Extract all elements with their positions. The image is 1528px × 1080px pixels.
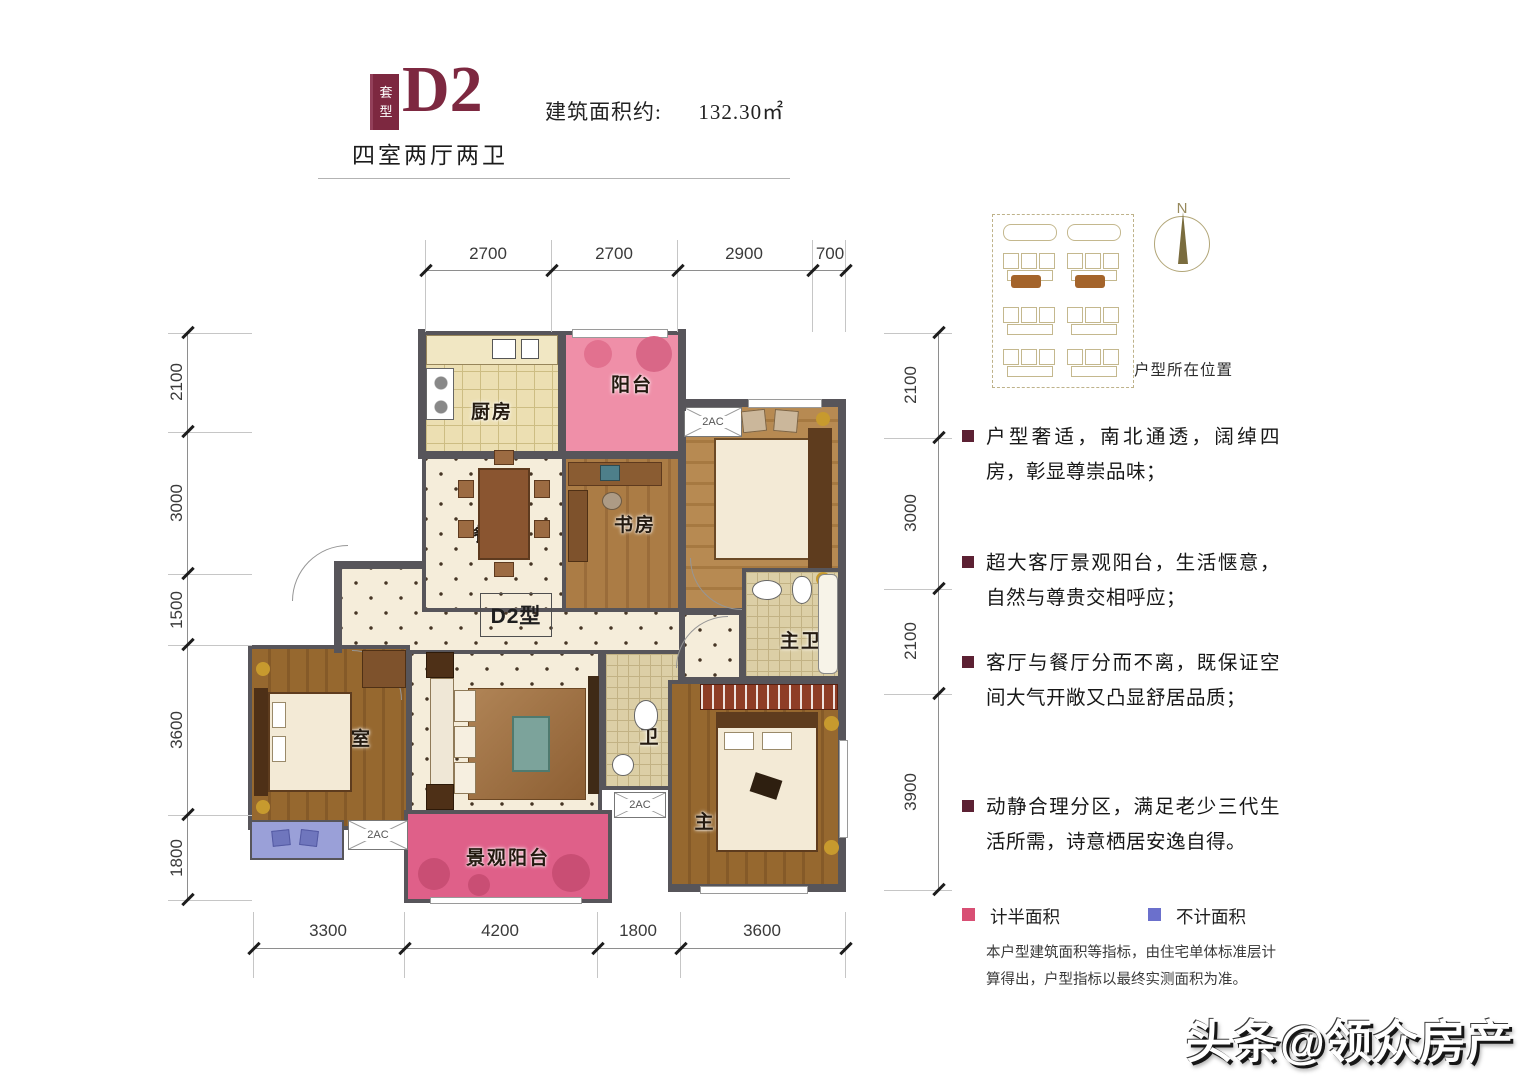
bullet-marker [962, 430, 974, 442]
bullet-text-4: 动静合理分区，满足老少三代生活所需，诗意栖居安逸自得。 [986, 790, 1280, 860]
master-bed-pillow [762, 732, 792, 750]
plan-unit-label-box: D2型 [480, 593, 552, 637]
bedroom-left-lamp [256, 662, 270, 676]
badge-char-bottom: 型 [379, 102, 392, 122]
window [430, 897, 582, 904]
bullet-text-1: 户型奢适，南北通透，阔绰四房，彰显尊崇品味； [986, 420, 1280, 490]
bedroom-left-dresser [362, 650, 406, 688]
bullet-marker [962, 800, 974, 812]
dim-extension [168, 645, 252, 646]
compass-needle [1178, 212, 1188, 264]
ac-unit-box-3: 2AC [614, 792, 666, 818]
view-balcony-flower [552, 854, 590, 892]
master-lamp [824, 840, 839, 855]
area-value: 132.30㎡ [698, 100, 784, 124]
no-area-cushion [299, 829, 319, 847]
site-map [992, 214, 1134, 388]
dim-left-2: 3000 [167, 468, 187, 538]
dim-left-1: 2100 [167, 347, 187, 417]
living-sofa-seat [454, 762, 476, 794]
unit-type-badge: 套 型 [370, 74, 399, 130]
site-highlight-unit [1011, 275, 1041, 288]
dim-line-top [425, 270, 845, 271]
view-balcony-flower [468, 874, 490, 896]
master-wardrobe [700, 684, 838, 710]
master-bath-toilet [792, 576, 812, 604]
study-computer [600, 465, 620, 481]
balcony-flower [584, 340, 612, 368]
site-location-label: 户型所在位置 [1134, 358, 1233, 380]
dining-table [478, 468, 530, 560]
dim-left-5: 1800 [167, 823, 187, 893]
site-building [1007, 324, 1053, 335]
living-end-table [426, 652, 454, 678]
bedroom-top-lamp [816, 412, 830, 426]
master-bath-shower [818, 574, 838, 674]
no-area-cushion [271, 829, 291, 847]
site-building [1003, 307, 1055, 323]
bedroom-left-lamp [256, 800, 270, 814]
dim-left-4: 3600 [167, 695, 187, 765]
wall-segment [418, 329, 426, 459]
dim-extension [884, 589, 952, 590]
legend-swatch-half-area [962, 908, 975, 921]
ac-unit-label-1: 2AC [699, 416, 726, 428]
dim-extension [168, 815, 252, 816]
site-building [1003, 224, 1057, 241]
unit-code: D2 [402, 52, 483, 128]
room-master-bath-label: 主卫 [780, 626, 822, 653]
kitchen-stove [426, 368, 454, 420]
site-building [1067, 349, 1119, 365]
dim-extension [168, 900, 252, 901]
ac-unit-box-1: 2AC [684, 407, 742, 437]
plan-unit-label: D2型 [491, 600, 542, 630]
dim-line-right [938, 333, 939, 890]
dim-right-2: 3000 [901, 478, 921, 548]
ac-unit-label-3: 2AC [626, 799, 653, 811]
layout-type: 四室两厅两卫 [352, 136, 508, 170]
badge-char-top: 套 [379, 83, 392, 103]
site-building [1003, 349, 1055, 365]
dim-bottom-1: 3300 [293, 921, 363, 941]
disclaimer-note: 本户型建筑面积等指标，由住宅单体标准层计算得出，户型指标以最终实测面积为准。 [986, 940, 1286, 994]
dining-chair [458, 520, 474, 538]
door-arc-entry [292, 545, 348, 601]
ac-unit-label-2: 2AC [364, 829, 391, 841]
area-row: 建筑面积约: 132.30㎡ [545, 96, 784, 126]
bath-toilet [634, 700, 658, 730]
bedroom-left-pillow [272, 736, 286, 762]
room-no-area-zone [250, 820, 344, 860]
dim-bottom-2: 4200 [465, 921, 535, 941]
room-kitchen-label: 厨房 [471, 397, 513, 424]
legend-swatch-no-area [1148, 908, 1161, 921]
dim-bottom-4: 3600 [727, 921, 797, 941]
kitchen-sink-2 [521, 339, 539, 359]
window [839, 740, 848, 838]
dim-extension [884, 890, 952, 891]
bullet-text-2: 超大客厅景观阳台，生活惬意，自然与尊贵交相呼应； [986, 546, 1280, 616]
dim-extension [884, 333, 952, 334]
living-sofa-seat [454, 726, 476, 758]
bath-sink [612, 754, 634, 776]
site-highlight-unit [1075, 275, 1105, 288]
master-bed-headboard [716, 712, 818, 726]
dim-extension [677, 240, 678, 332]
room-view-balcony-label: 景观阳台 [466, 843, 550, 870]
area-label: 建筑面积约: [545, 100, 662, 124]
floorplan-page: 套 型 D2 建筑面积约: 132.30㎡ 四室两厅两卫 厨房 阳台 卧室 书房… [0, 0, 1528, 1080]
bedroom-top-pillow [773, 409, 799, 433]
bedroom-top-headboard [808, 428, 832, 568]
living-coffee-table [512, 716, 550, 772]
dim-right-3: 2100 [901, 606, 921, 676]
header-divider [318, 178, 790, 179]
legend-label-no-area: 不计面积 [1176, 904, 1246, 929]
dining-chair [494, 562, 514, 577]
dim-extension [551, 240, 552, 332]
dim-extension [168, 333, 252, 334]
dim-extension [884, 438, 952, 439]
master-bed-pillow [724, 732, 754, 750]
dining-chair [534, 520, 550, 538]
watermark: 头条@领众房产 [1186, 1006, 1514, 1072]
dining-chair [534, 480, 550, 498]
bedroom-left-headboard [254, 688, 268, 796]
site-building [1071, 366, 1117, 377]
dim-top-1: 2700 [453, 244, 523, 264]
dim-top-4: 700 [795, 244, 865, 264]
view-balcony-flower [418, 858, 450, 890]
dining-chair [494, 450, 514, 465]
site-building [1067, 253, 1119, 269]
bedroom-top-pillow [741, 409, 767, 433]
legend-label-half-area: 计半面积 [990, 904, 1060, 929]
living-end-table [426, 784, 454, 810]
bullet-marker [962, 556, 974, 568]
living-sofa-seat [454, 690, 476, 722]
bullet-marker [962, 656, 974, 668]
bedroom-top-bed [714, 438, 810, 560]
master-lamp [824, 716, 839, 731]
living-tv-board [588, 676, 599, 794]
dim-bottom-3: 1800 [603, 921, 673, 941]
site-building [1067, 224, 1121, 241]
dim-right-1: 2100 [901, 350, 921, 420]
dim-line-bottom [253, 948, 845, 949]
window [748, 399, 822, 408]
dining-chair [458, 480, 474, 498]
site-building [1007, 366, 1053, 377]
study-shelf [568, 490, 588, 562]
room-study-label: 书房 [614, 510, 656, 537]
dim-top-2: 2700 [579, 244, 649, 264]
bedroom-left-pillow [272, 702, 286, 728]
site-building [1003, 253, 1055, 269]
site-building [1067, 307, 1119, 323]
balcony-flower [636, 336, 672, 372]
dim-extension [168, 432, 252, 433]
dim-extension [425, 240, 426, 332]
room-balcony-top-label: 阳台 [611, 370, 653, 397]
master-bath-sink [752, 580, 782, 600]
kitchen-sink [492, 339, 516, 359]
study-chair [602, 492, 622, 510]
bullet-text-3: 客厅与餐厅分而不离，既保证空间大气开敞又凸显舒居品质； [986, 646, 1280, 716]
dim-right-4: 3900 [901, 757, 921, 827]
site-building [1071, 324, 1117, 335]
window [700, 886, 808, 894]
dim-left-3: 1500 [167, 575, 187, 645]
ac-unit-box-2: 2AC [348, 820, 408, 850]
dim-extension [884, 694, 952, 695]
dim-top-3: 2900 [709, 244, 779, 264]
